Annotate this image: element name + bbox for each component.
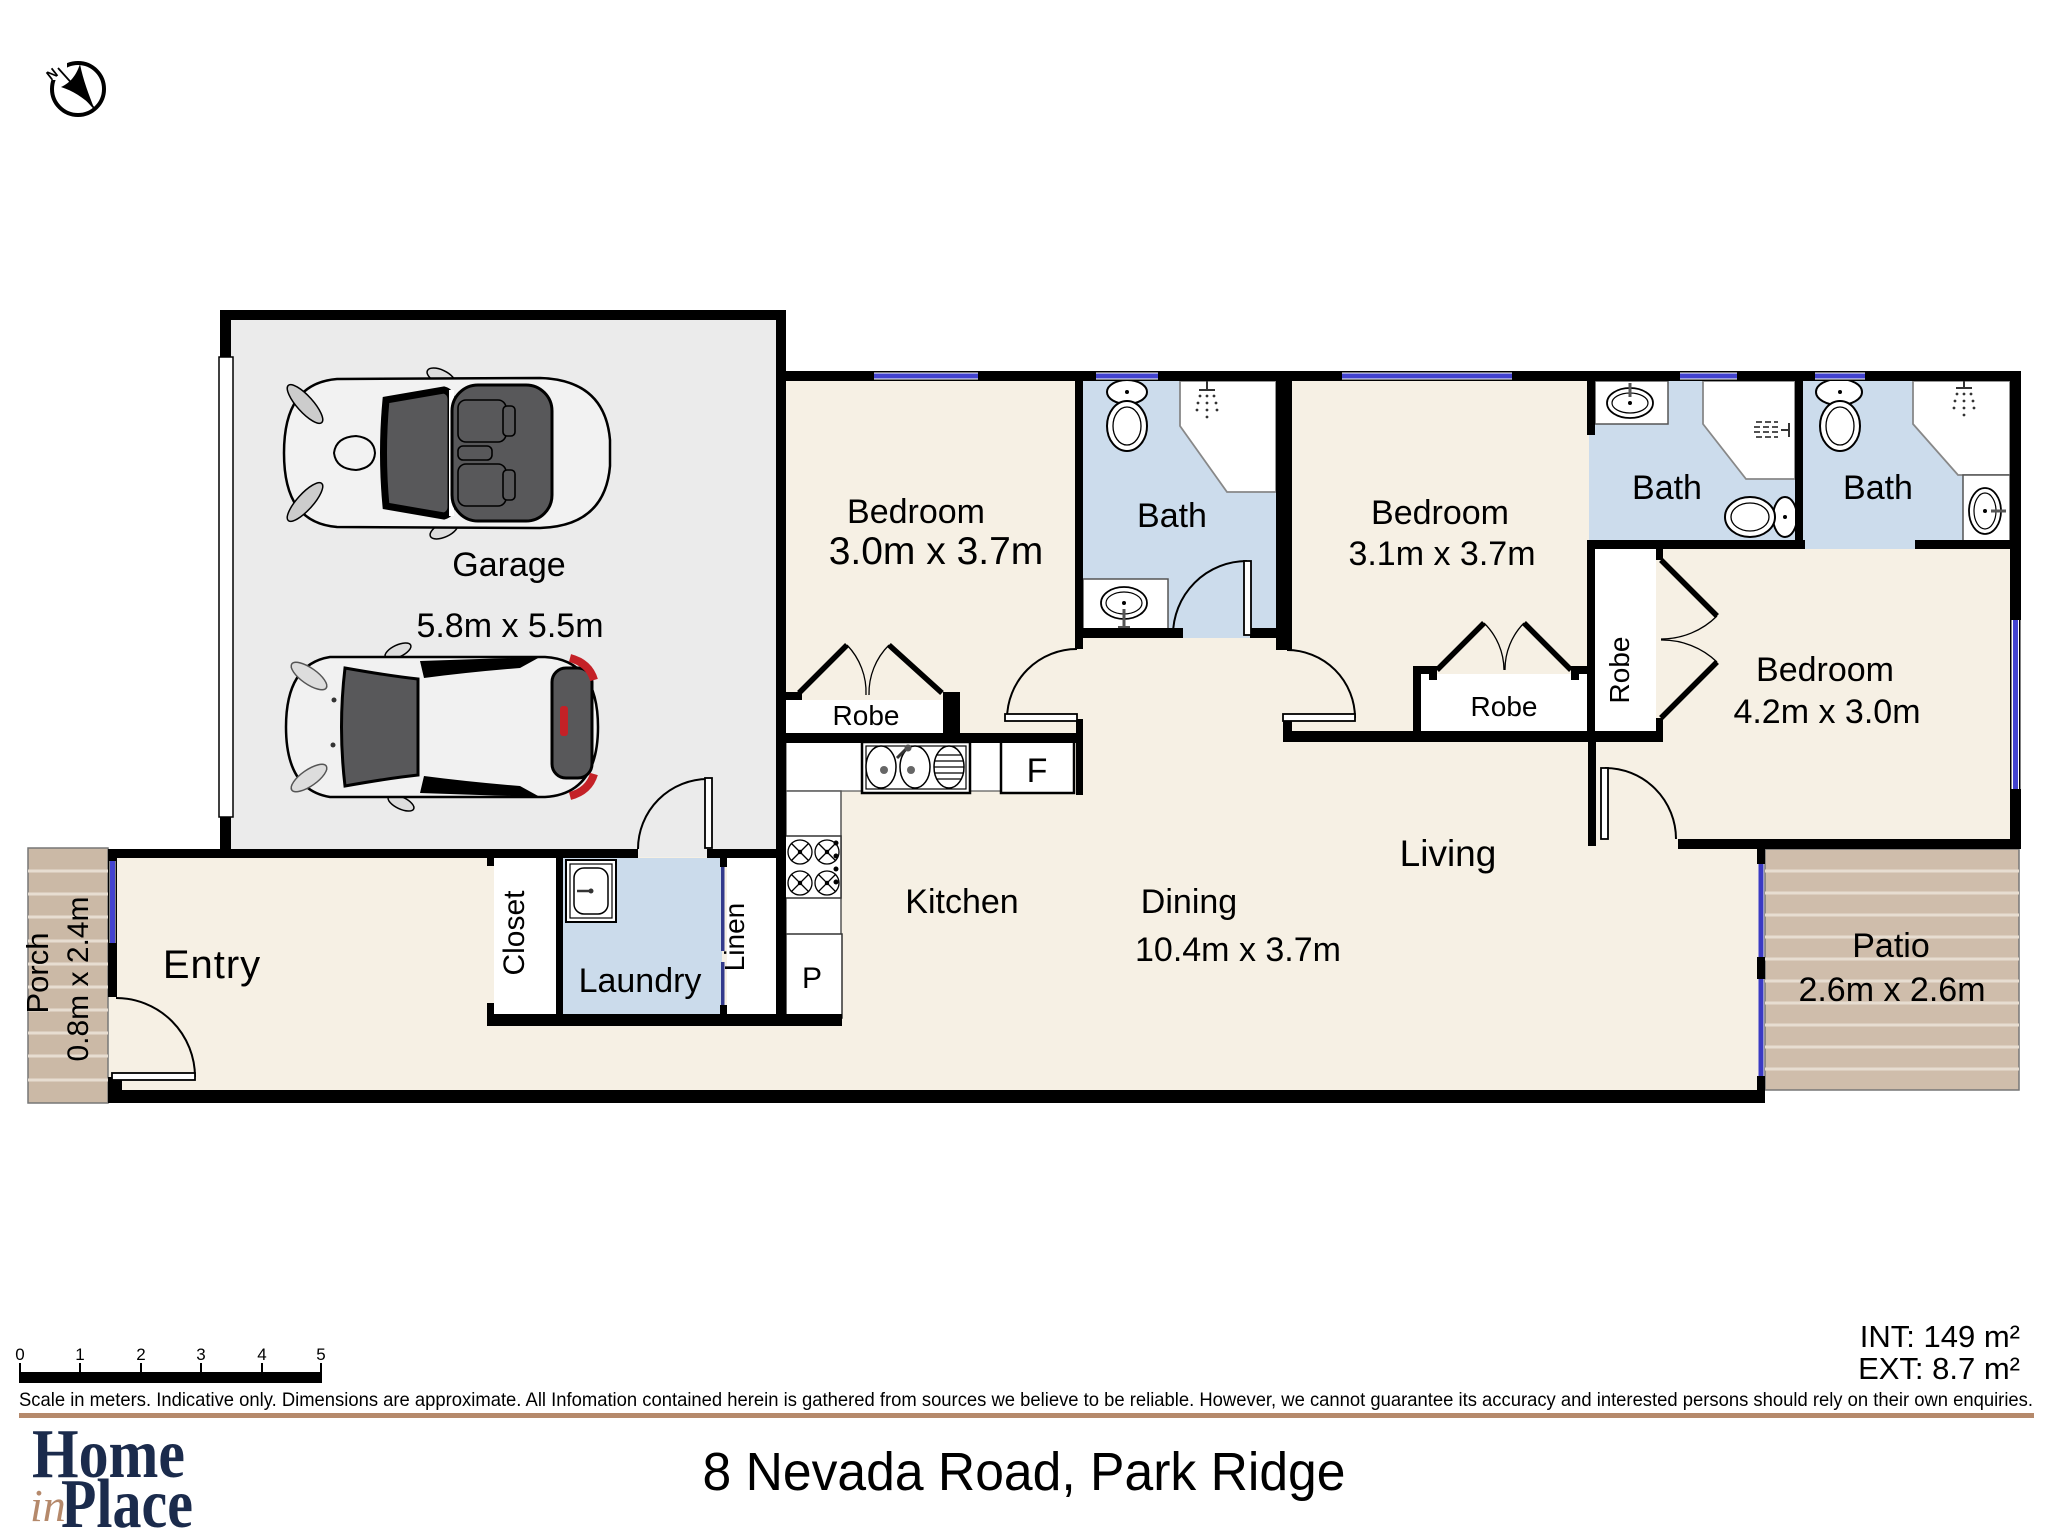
svg-text:5.8m x 5.5m: 5.8m x 5.5m — [416, 607, 603, 645]
svg-text:P: P — [802, 962, 822, 995]
svg-text:Dining: Dining — [1141, 883, 1237, 921]
svg-text:3.0m x 3.7m: 3.0m x 3.7m — [829, 530, 1044, 573]
svg-text:Bath: Bath — [1843, 469, 1913, 507]
svg-text:Entry: Entry — [163, 943, 261, 987]
svg-text:Living: Living — [1400, 833, 1497, 874]
svg-text:Robe: Robe — [833, 700, 900, 731]
svg-text:Kitchen: Kitchen — [905, 883, 1018, 921]
svg-text:2.6m x 2.6m: 2.6m x 2.6m — [1798, 971, 1985, 1009]
svg-text:Bath: Bath — [1632, 469, 1702, 507]
svg-text:Robe: Robe — [1604, 637, 1635, 704]
svg-text:3.1m x 3.7m: 3.1m x 3.7m — [1348, 535, 1535, 573]
svg-text:Bath: Bath — [1137, 497, 1207, 535]
svg-text:Closet: Closet — [498, 890, 531, 976]
svg-text:Scale in meters. Indicative on: Scale in meters. Indicative only. Dimens… — [19, 1389, 2033, 1411]
svg-text:1: 1 — [75, 1345, 84, 1364]
svg-text:Robe: Robe — [1471, 691, 1538, 722]
svg-text:4: 4 — [257, 1345, 266, 1364]
svg-text:Bedroom: Bedroom — [1371, 494, 1509, 532]
svg-text:INT: 149 m²: INT: 149 m² — [1860, 1319, 2020, 1354]
svg-text:4.2m x 3.0m: 4.2m x 3.0m — [1733, 693, 1920, 731]
svg-text:2: 2 — [136, 1345, 145, 1364]
svg-text:Bedroom: Bedroom — [847, 493, 985, 531]
svg-text:F: F — [1027, 752, 1048, 790]
svg-text:10.4m x 3.7m: 10.4m x 3.7m — [1135, 931, 1341, 969]
svg-text:EXT: 8.7 m²: EXT: 8.7 m² — [1858, 1351, 2020, 1386]
svg-text:8 Nevada Road, Park Ridge: 8 Nevada Road, Park Ridge — [703, 1442, 1346, 1502]
svg-text:Place: Place — [61, 1466, 193, 1536]
svg-text:0.8m x 2.4m: 0.8m x 2.4m — [62, 896, 95, 1061]
svg-text:3: 3 — [196, 1345, 205, 1364]
svg-text:5: 5 — [316, 1345, 325, 1364]
svg-text:Patio: Patio — [1852, 927, 1930, 965]
svg-text:Laundry: Laundry — [579, 962, 702, 1000]
svg-text:Bedroom: Bedroom — [1756, 651, 1894, 689]
svg-text:Garage: Garage — [452, 546, 565, 584]
svg-text:Porch: Porch — [20, 933, 55, 1014]
svg-text:0: 0 — [15, 1345, 24, 1364]
